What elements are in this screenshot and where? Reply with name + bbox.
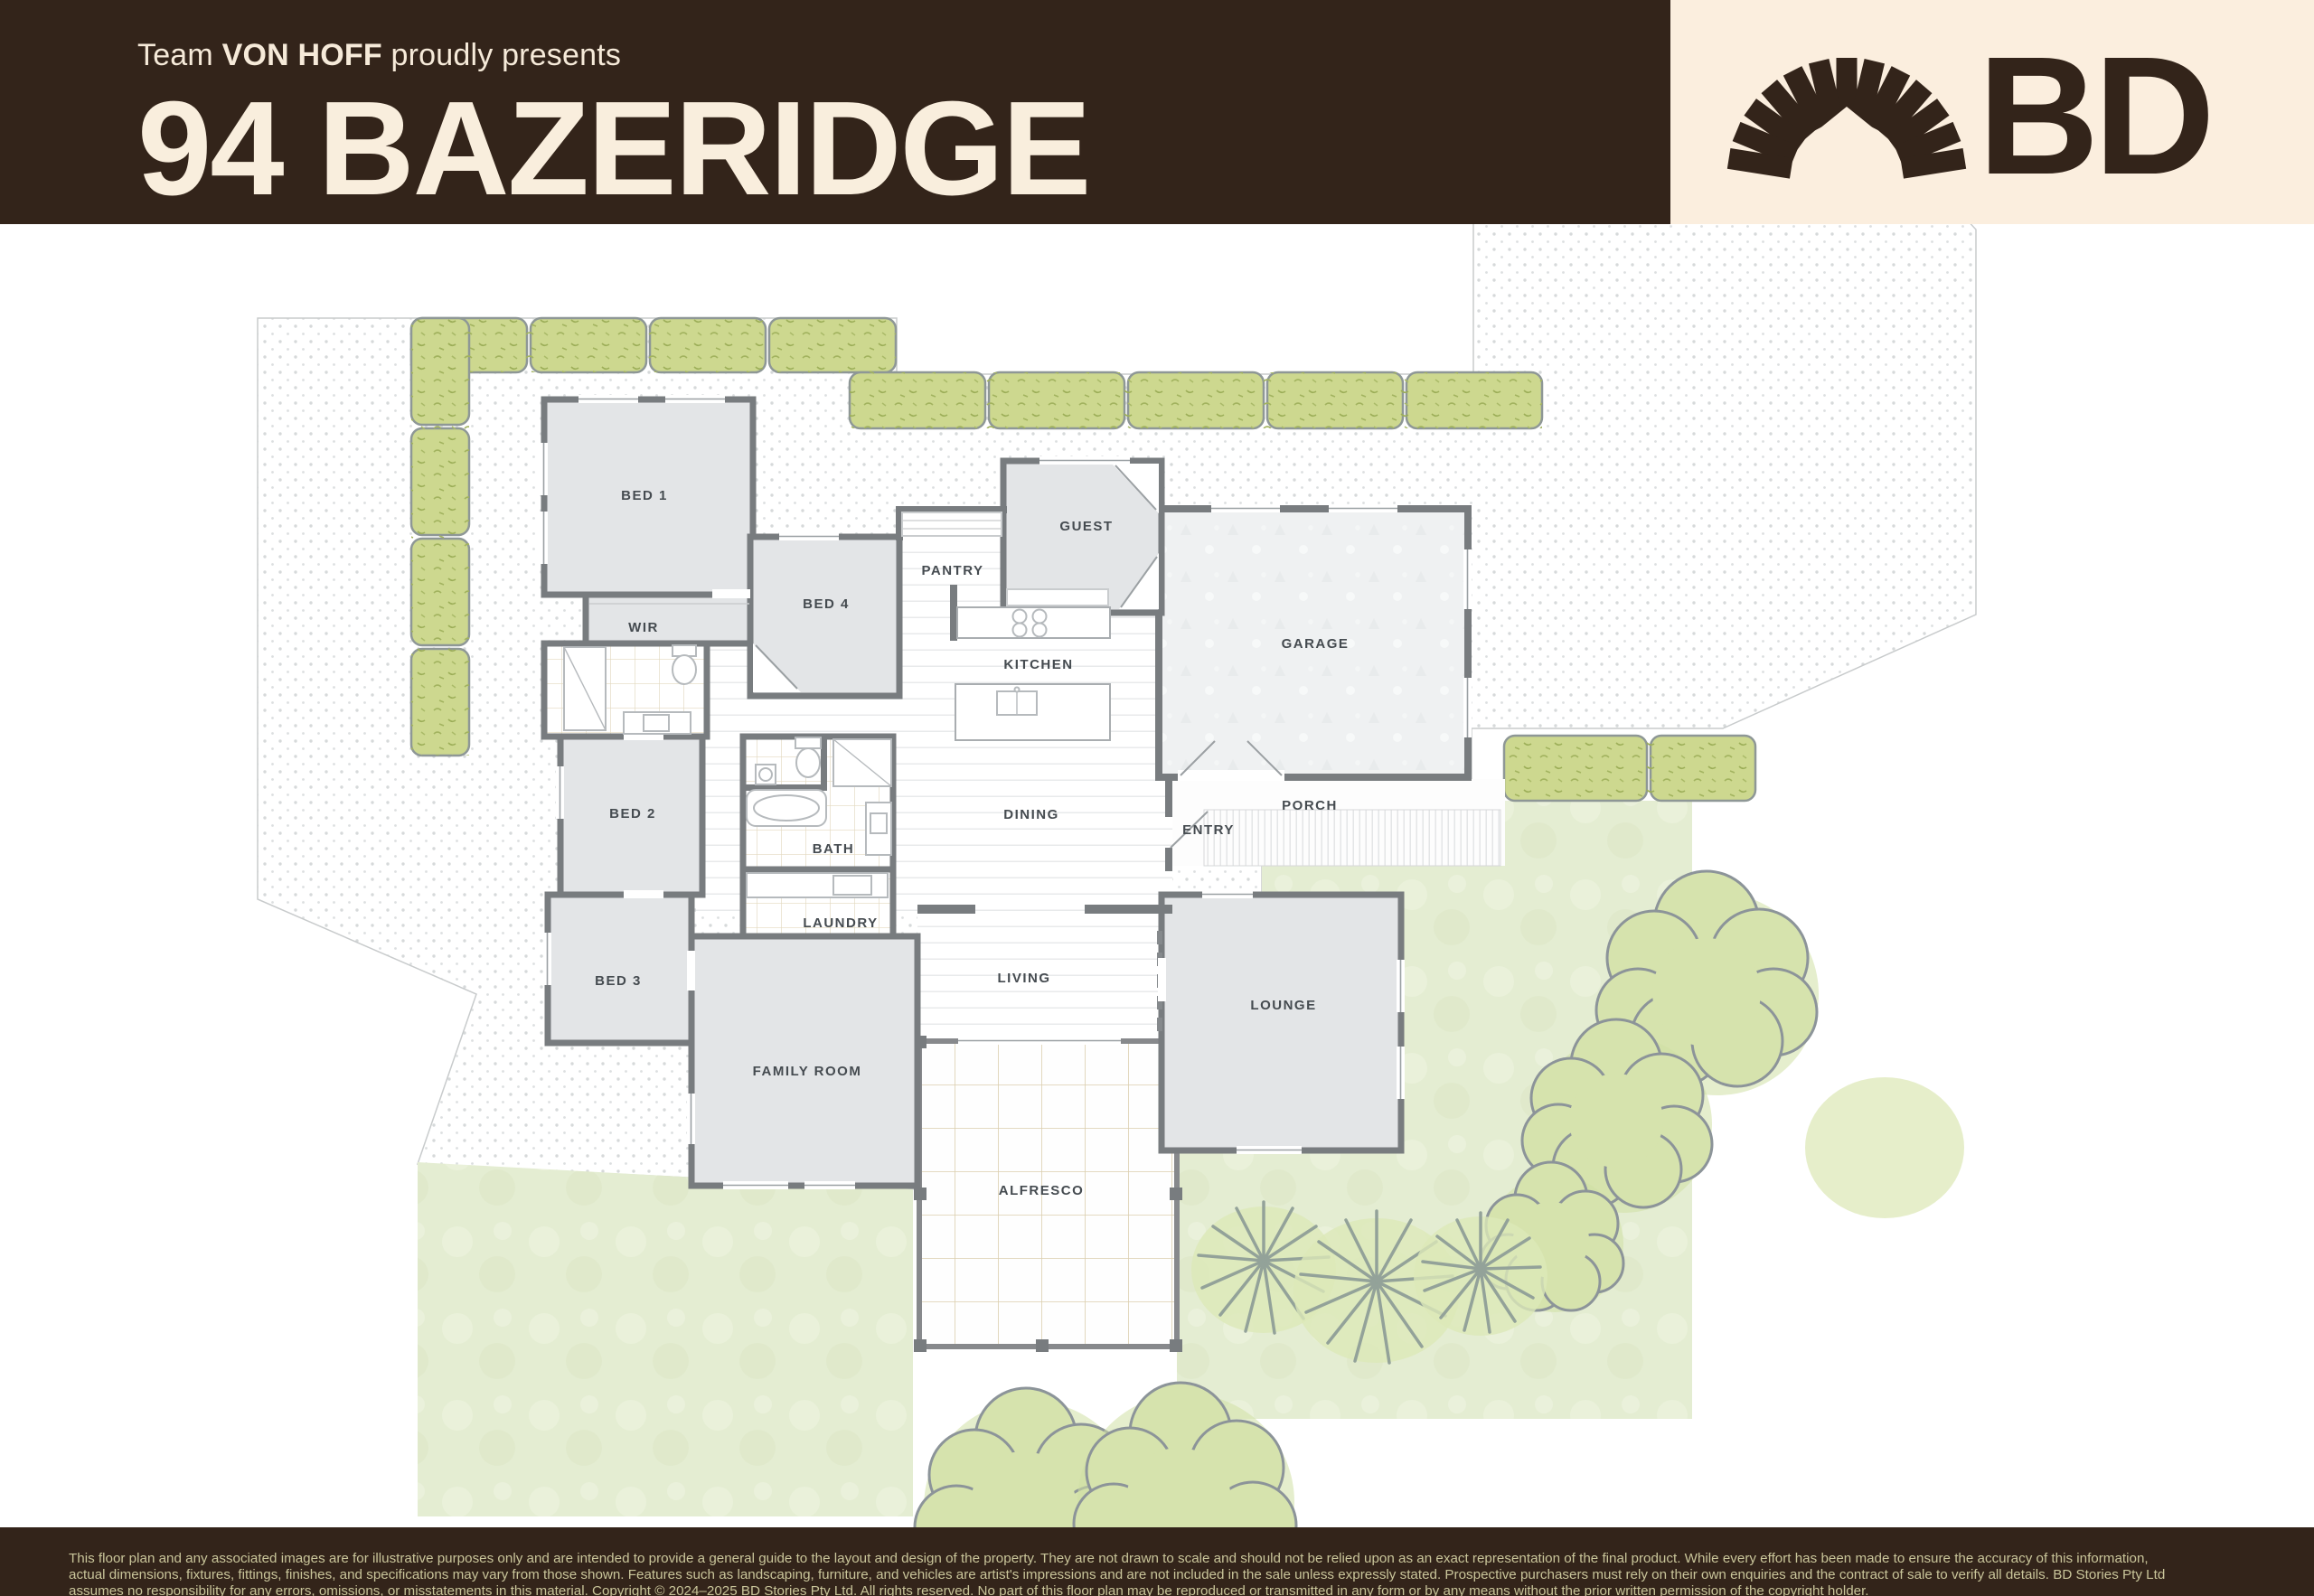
team-name: VON HOFF [222,38,382,72]
room-label-porch: PORCH [1282,798,1338,813]
page-title: 94 BAZERIDGE [137,82,1089,216]
room-label-bath: BATH [813,841,855,857]
brand-text: BD [1978,23,2210,210]
floor-plan: BED 1 WIR BED 4 PANTRY GUEST GARAGE KITC… [0,0,2314,1596]
brand-logo: BD [1670,0,2314,224]
disclaimer-line-2: actual dimensions, fixtures, fittings, f… [69,1567,2260,1583]
room-label-lounge: LOUNGE [1250,998,1316,1013]
room-label-bed2: BED 2 [609,806,656,821]
footer-disclaimer: This floor plan and any associated image… [0,1527,2314,1596]
room-label-living: LIVING [997,971,1050,986]
room-label-entry: ENTRY [1182,822,1235,838]
room-label-kitchen: KITCHEN [1003,657,1073,672]
team-prefix: Team [137,38,222,72]
presents-line: Team VON HOFF proudly presents [137,38,1089,73]
room-label-dining: DINING [1003,807,1059,822]
floor-plan-page: BED 1 WIR BED 4 PANTRY GUEST GARAGE KITC… [0,0,2314,1596]
room-label-alfresco: ALFRESCO [999,1183,1085,1198]
grass-left [418,1162,913,1516]
room-label-family: FAMILY ROOM [753,1064,862,1079]
brand-logo-panel: BD [1670,0,2314,224]
room-label-bed4: BED 4 [803,596,850,612]
disclaimer-line-1: This floor plan and any associated image… [69,1551,2260,1567]
room-label-garage: GARAGE [1282,636,1350,652]
room-label-bed3: BED 3 [595,973,642,989]
room-label-guest: GUEST [1059,519,1113,534]
presents-suffix: proudly presents [382,38,621,72]
room-label-pantry: PANTRY [922,563,984,578]
disclaimer-line-3: assumes no responsibility for any errors… [69,1583,2260,1596]
sunburst-arch-house-icon [1729,58,1965,177]
room-label-laundry: LAUNDRY [803,915,878,931]
header-banner: Team VON HOFF proudly presents 94 BAZERI… [0,0,2314,224]
room-label-wir: WIR [628,620,659,635]
room-label-bed1: BED 1 [621,488,668,503]
shrub-blob-icon [1805,1077,1964,1218]
